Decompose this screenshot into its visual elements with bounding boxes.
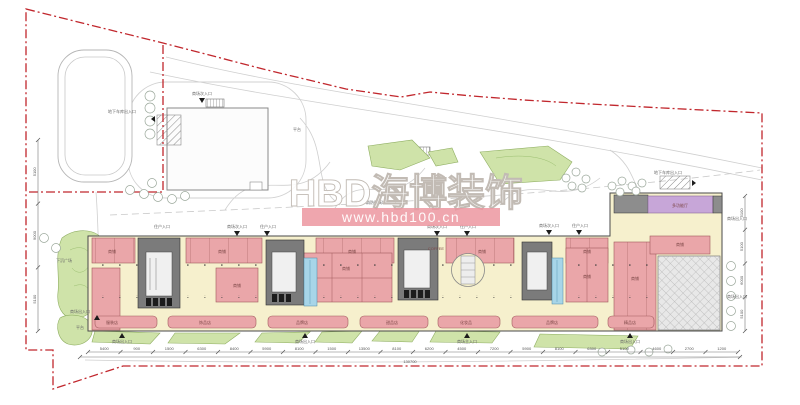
shop-label: 商铺 <box>631 275 639 281</box>
service-room-gray-2 <box>713 196 722 213</box>
dimension-total-value: 130700 <box>403 359 417 364</box>
mall-main-entrance-label: 商场主入口 <box>457 338 477 344</box>
dimension-column-left: 510090005100 <box>32 138 40 333</box>
green-strip-5 <box>372 330 420 342</box>
dimension-value: 7200 <box>490 346 500 351</box>
resident-entrance-label: 住户入口 <box>572 222 588 228</box>
dimension-value: 6200 <box>425 346 435 351</box>
green-plaza-3 <box>428 148 458 166</box>
dimension-value: 5900 <box>522 346 532 351</box>
resident-entrance-label: 住户入口 <box>260 223 276 229</box>
entrance-marker-icon <box>576 230 582 235</box>
pond-outline-outer <box>58 50 132 182</box>
escalator-blue <box>304 258 317 306</box>
entrance-marker-icon <box>692 180 696 186</box>
garage-entrance-label: 商场次入口 <box>192 90 212 96</box>
dimension-value: 1200 <box>717 346 727 351</box>
stairs-icon <box>206 99 224 107</box>
dimension-value: 2700 <box>685 346 695 351</box>
dimension-value: 4500 <box>457 346 467 351</box>
dimension-value: 6300 <box>587 346 597 351</box>
green-strip-4 <box>315 331 362 343</box>
shop-label: 商铺 <box>676 241 684 247</box>
multifunction-label: 多功能厅 <box>672 202 688 208</box>
site-plan-canvas: 地下车库出入口 地下车库出入口 商场次入口 平台 平台 下沉广场 消防登高场地 … <box>0 0 800 405</box>
shops-bottom-row <box>95 316 654 328</box>
entrance-marker-icon <box>546 230 552 235</box>
shop-label: 商铺 <box>233 282 241 288</box>
platform-label: 平台 <box>293 126 301 132</box>
escalator-blue <box>552 258 563 304</box>
mall-entrance-label: 商场出入口 <box>112 338 132 344</box>
shop-label: 商铺 <box>583 248 591 254</box>
entrance-marker-icon <box>234 231 240 236</box>
shop-label: 商铺 <box>348 248 356 254</box>
dimension-value: 6000 <box>739 275 744 285</box>
dimension-total: 130700 <box>78 355 742 364</box>
dimension-value: 8100 <box>392 346 402 351</box>
coffee-label: COFFEE <box>428 246 445 251</box>
dimension-value: 9000 <box>32 230 37 240</box>
garage-ramp-west <box>157 115 181 145</box>
entrance-marker-icon <box>264 231 270 236</box>
dimension-value: 8100 <box>295 346 305 351</box>
entrance-marker-icon <box>199 98 205 103</box>
dimension-value: 8100 <box>555 346 565 351</box>
shop-label: 化妆品 <box>460 319 472 325</box>
mall-side-entrance-label: 商场次入口 <box>539 222 559 228</box>
dimension-value: 900 <box>133 346 140 351</box>
dimension-value: 5100 <box>739 208 744 218</box>
floor-plan-drawing: 地下车库出入口 地下车库出入口 商场次入口 平台 平台 下沉广场 消防登高场地 … <box>0 0 800 405</box>
platform-label: 平台 <box>76 324 84 330</box>
shop-label: 饰品店 <box>199 319 211 325</box>
core-1 <box>138 238 180 308</box>
shop-label: 品牌店 <box>296 319 308 325</box>
shop-label: 商铺 <box>108 248 116 254</box>
garage-ramp-east <box>660 176 690 189</box>
dimension-value: 1500 <box>165 346 175 351</box>
shop-label: 商铺 <box>478 248 486 254</box>
building-door <box>250 182 262 190</box>
mall-entrance-label: 商场出入口 <box>70 308 90 314</box>
back-of-house-hatch-pattern <box>658 256 720 330</box>
dimension-value: 6300 <box>197 346 207 351</box>
existing-building <box>167 108 268 190</box>
service-rooms-gray <box>614 195 648 213</box>
garage-entrance-label: 地下车库出入口 <box>654 169 682 175</box>
entrance-marker-icon <box>464 231 470 236</box>
dimension-value: 13500 <box>359 346 371 351</box>
sunken-plaza-label: 下沉广场 <box>56 257 72 263</box>
dimension-value: 5900 <box>262 346 272 351</box>
shop-label: 服装店 <box>106 319 118 325</box>
watermark-url-text: www.hbd100.cn <box>341 209 460 225</box>
shop-label: 品牌店 <box>546 319 558 325</box>
dimension-value: 5100 <box>32 167 37 177</box>
resident-entrance-label: 住户入口 <box>154 223 170 229</box>
entrance-marker-icon <box>434 231 440 236</box>
mall-entrance-label: 商场出入口 <box>727 215 747 221</box>
dimension-value: 8400 <box>230 346 240 351</box>
dimension-value: 5100 <box>620 346 630 351</box>
mall-side-entrance-label: 商场次入口 <box>227 223 247 229</box>
dimension-value: 4600 <box>652 346 662 351</box>
mall-entrance-label: 商场出入口 <box>620 338 640 344</box>
garage-entrance-label: 地下车库出入口 <box>108 108 136 114</box>
shop-label: 商铺 <box>218 248 226 254</box>
dimension-value: 5100 <box>739 241 744 251</box>
dimension-column-right: 5100510060005100 <box>739 194 747 333</box>
dimension-value: 1500 <box>327 346 337 351</box>
dimension-value: 5100 <box>32 294 37 304</box>
shop-label: 精品店 <box>624 319 636 325</box>
dimension-value: 5100 <box>739 309 744 319</box>
mall-entrance-label: 商场出入口 <box>295 338 315 344</box>
green-strip-2 <box>168 333 240 344</box>
green-hill-west-lower <box>58 315 93 345</box>
dimension-row-bottom: 5400900150063008400590081001500135008100… <box>86 346 740 354</box>
circular-atrium <box>452 254 485 287</box>
shop-label: 商铺 <box>342 265 350 271</box>
shop-label: 商铺 <box>583 273 591 279</box>
dimension-value: 5400 <box>100 346 110 351</box>
green-plaza-1 <box>368 140 430 170</box>
watermark: HBD海博装饰 www.hbd100.cn <box>289 173 523 226</box>
shop-label: 甜品店 <box>386 319 398 325</box>
